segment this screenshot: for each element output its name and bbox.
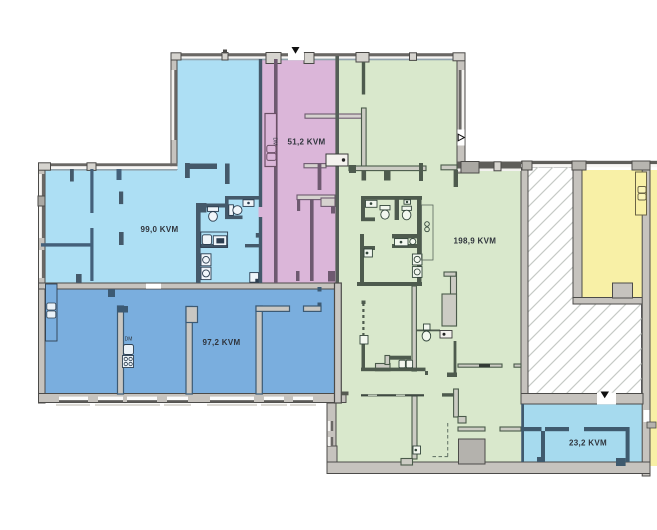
svg-text:198,9 KVM: 198,9 KVM [454,236,497,245]
svg-text:99,0 KVM: 99,0 KVM [141,225,179,234]
svg-text:51,2 KVM: 51,2 KVM [288,137,326,146]
svg-text:DM: DM [272,138,278,146]
svg-text:DM: DM [125,336,133,342]
svg-text:97,2 KVM: 97,2 KVM [203,338,241,347]
svg-text:23,2 KVM: 23,2 KVM [569,438,607,447]
